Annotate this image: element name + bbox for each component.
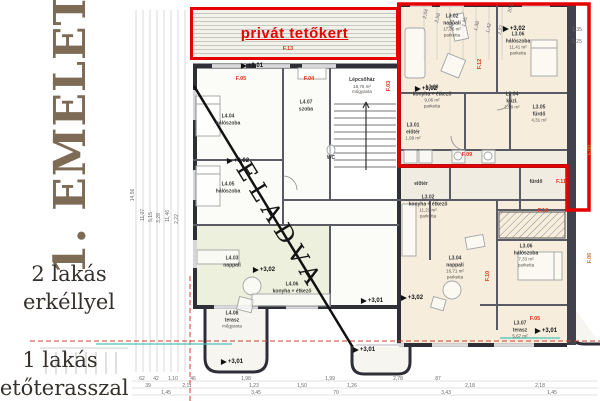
level-flag-icon bbox=[253, 267, 259, 273]
shaft-hatch bbox=[499, 212, 565, 238]
dimension-label: 42 bbox=[153, 376, 159, 382]
level-marker: +3,02 bbox=[415, 86, 437, 92]
note-line: erkéllyel bbox=[8, 288, 130, 316]
bed bbox=[531, 40, 557, 76]
ref-label: F.05 bbox=[236, 76, 246, 82]
dimension-label: 62 bbox=[139, 376, 145, 382]
level-flag-icon bbox=[241, 63, 247, 69]
wc-bowl bbox=[327, 145, 335, 155]
note-line: 1 lakás bbox=[0, 346, 136, 374]
roof-garden-area: privát tetőkert bbox=[190, 7, 399, 60]
kitchen-unit bbox=[404, 150, 417, 163]
ref-label: F.06 bbox=[587, 253, 593, 263]
level-marker: +3,02 bbox=[401, 295, 423, 301]
ref-label: F.09 bbox=[462, 152, 472, 158]
dimension-label: 1,98 bbox=[241, 376, 251, 382]
room-label: Lépcsőház 18,76 m² műgyanta bbox=[349, 77, 375, 95]
dimension-label: 1,50 bbox=[297, 383, 307, 389]
dimension-label: 11,46 bbox=[165, 210, 171, 222]
room-label: L4.07 szoba bbox=[299, 100, 313, 113]
room-label: WC bbox=[327, 155, 335, 162]
level-flag-icon bbox=[221, 359, 227, 365]
ref-label: F.05 bbox=[530, 316, 540, 322]
dimension-label: 1,26 bbox=[347, 383, 357, 389]
room-label: L3.01 előtér 1,99 m² bbox=[405, 123, 420, 142]
level-flag-icon bbox=[535, 328, 541, 334]
level-marker: +3,01 bbox=[361, 298, 383, 304]
roof-garden-label: privát tetőkert bbox=[241, 25, 349, 42]
chair bbox=[465, 235, 485, 250]
round-table bbox=[243, 277, 261, 295]
room-label: L3.04 nappali 16,71 m² parketta bbox=[446, 256, 464, 281]
room-label: L3.02 konyha + étkező 11,21 m² parketta bbox=[409, 195, 448, 220]
level-marker: +3,01 bbox=[221, 359, 243, 365]
room-label: L4.08 terasz műgyanta bbox=[222, 311, 242, 330]
kitchen-unit bbox=[419, 150, 432, 163]
room-label: L4.03 nappali bbox=[223, 256, 241, 269]
level-flag-icon bbox=[401, 295, 407, 301]
room-label: L4.06 konyha + étkező bbox=[273, 282, 312, 295]
room-label: L3.06 hálószoba 11,41 m² parketta bbox=[506, 32, 530, 57]
dimension-label: 1,35 bbox=[572, 27, 582, 33]
room-label: L3.05 fürdő 4,31 m² bbox=[531, 105, 546, 124]
dimension-label: 2,18 bbox=[535, 383, 545, 389]
dining-table bbox=[443, 281, 461, 299]
dimension-label: 3,45 bbox=[251, 390, 261, 396]
ref-label: F.03 bbox=[386, 81, 392, 91]
dimension-label: 39 bbox=[145, 383, 151, 389]
room-label: L4.04 hálószoba bbox=[216, 114, 240, 127]
level-flag-icon bbox=[361, 298, 367, 304]
dimension-label: 87 bbox=[435, 376, 441, 382]
dimension-label: 14,56 bbox=[130, 189, 136, 202]
room-label: L3.07 terasz 5,67 m² bbox=[512, 321, 527, 340]
note-line: 2 lakás bbox=[8, 260, 130, 288]
dimension-label: 1,99 bbox=[325, 376, 335, 382]
level-marker: +3,01 bbox=[353, 347, 375, 353]
dimension-label: 1,25 bbox=[572, 39, 582, 45]
dimension-label: 3,43 bbox=[441, 390, 451, 396]
level-flag-icon bbox=[415, 86, 421, 92]
dimension-label: 1,45 bbox=[547, 390, 557, 396]
floorplan-canvas: 1. EMELET 2 lakás erkéllyel 1 lakás tető… bbox=[0, 0, 600, 401]
dimension-label: 46 bbox=[190, 376, 196, 382]
ref-label: F.10 bbox=[485, 271, 491, 281]
level-marker: +3,02 bbox=[227, 158, 249, 164]
level-marker: +3,01 bbox=[535, 328, 557, 334]
level-marker: +3,01 bbox=[241, 63, 263, 69]
ref-label: F.16 bbox=[538, 208, 548, 214]
note-two-flats: 2 lakás erkéllyel bbox=[8, 260, 130, 317]
room-label: L3.04 közl. 2,98 m² bbox=[504, 92, 519, 111]
dimension-label: 2,22 bbox=[174, 214, 180, 224]
note-one-flat: 1 lakás tetőterasszal bbox=[0, 346, 136, 401]
floor-title: 1. EMELET bbox=[45, 5, 101, 275]
level-marker: +3,02 bbox=[253, 267, 275, 273]
dimension-label: 70 bbox=[333, 390, 339, 396]
ref-label: F.11 bbox=[556, 179, 566, 185]
level-flag-icon bbox=[227, 158, 233, 164]
level-flag-icon bbox=[353, 347, 359, 353]
dimension-label: 1,23 bbox=[249, 383, 259, 389]
dimension-label: 1,10 bbox=[168, 376, 178, 382]
note-line: tetőterasszal bbox=[0, 374, 136, 401]
ref-label: F.13 bbox=[283, 46, 293, 52]
dimension-label: 2,11 bbox=[182, 383, 191, 389]
room-label: L4.05 hálószoba bbox=[216, 182, 240, 195]
ref-label: F.08 bbox=[587, 145, 593, 155]
ref-label: F.04 bbox=[304, 76, 314, 82]
dimension-label: 2,18 bbox=[465, 383, 475, 389]
dimension-label: 2,78 bbox=[393, 376, 403, 382]
room-label: L3.06 hálószoba 7,33 m² parketta bbox=[514, 244, 538, 269]
dimension-label: 1,45 bbox=[161, 390, 171, 396]
dimension-label: 11,07 bbox=[140, 209, 146, 221]
ref-label: F.12 bbox=[477, 59, 483, 69]
room-label: fürdő bbox=[530, 179, 543, 186]
sofa bbox=[405, 28, 425, 78]
level-marker: +3,02 bbox=[503, 26, 525, 32]
room-label: előtér bbox=[414, 181, 428, 188]
dimension-label: 5,15 bbox=[148, 212, 154, 222]
dimension-label: 3,28 bbox=[156, 213, 162, 223]
